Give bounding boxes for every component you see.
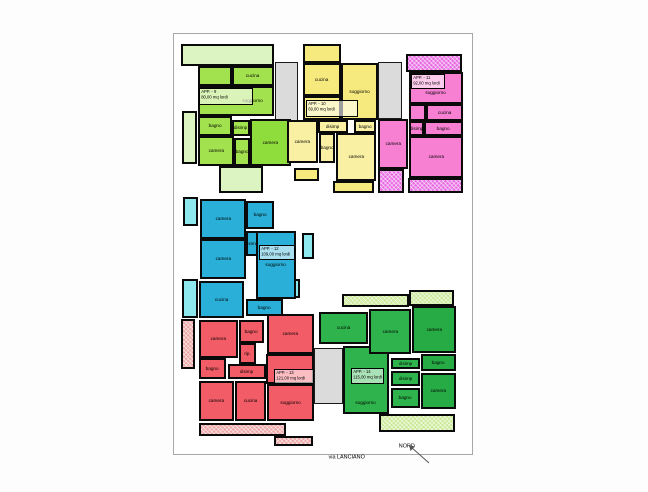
apartment-label-text: APP. - 14115,00 mq lordi [352, 369, 371, 382]
room-label: camera [263, 140, 278, 145]
room-area [303, 44, 341, 63]
room-cucina: cucina [232, 66, 274, 86]
room-label: disimp [399, 361, 412, 366]
room-disimp: disimp [391, 371, 420, 386]
room-cucina: cucina [303, 63, 341, 96]
apartment-label-app-11: APP. - 1192,00 mq lordi [411, 74, 445, 89]
balcony [302, 233, 314, 259]
room-label: bagno [209, 124, 222, 129]
apartment-label-app-13: APP. - 13121,00 mq lordi [274, 369, 314, 384]
room-disimp: disimp [409, 121, 424, 136]
apartment-label-text: APP. - 13121,00 mq lordi [275, 370, 298, 383]
room-cucina: cucina [426, 104, 463, 121]
room-camera: camera [287, 120, 318, 163]
apartment-label-text: APP. - 12109,00 mq lordi [260, 246, 280, 259]
room-label: soggiorno [266, 263, 286, 268]
room-label: disimp [410, 126, 423, 131]
balcony [182, 279, 198, 318]
room-label: bagno [437, 126, 450, 131]
room-label: bagno [254, 213, 267, 218]
room-label: bagno [432, 360, 445, 365]
room-label: camera [431, 389, 446, 394]
room-area [294, 168, 319, 181]
stairwell [314, 348, 343, 404]
screenshot-canvas: cucinasoggiornobagnodisimpcamerabagnocam… [0, 0, 648, 492]
room-bagno: bagno [391, 388, 420, 408]
room-disimp: disimp [391, 358, 420, 369]
room-disimp: disimp [228, 364, 266, 379]
room-label: soggiorno [349, 89, 369, 94]
balcony [199, 423, 286, 436]
room-bagno: bagno [319, 133, 335, 163]
balcony [219, 166, 263, 193]
room-label: camera [385, 142, 400, 147]
room-label: bagno [399, 396, 412, 401]
room-soggiorno: soggiorno [267, 384, 314, 421]
room-camera: camera [198, 136, 234, 166]
street-label-text: via LANCIANO [329, 454, 365, 459]
room-label: camera [382, 329, 397, 334]
room-camera: camera [412, 306, 456, 353]
stairwell [378, 62, 402, 119]
room-label: camera [283, 332, 298, 337]
room-bagno: bagno [198, 116, 232, 136]
room-area [409, 104, 426, 121]
room-label: cucina [315, 77, 328, 82]
room-camera: camera [336, 133, 376, 181]
north-arrow [406, 442, 434, 466]
room-camera: camera [421, 373, 456, 409]
balcony [408, 178, 463, 193]
room-camera: camera [199, 320, 238, 358]
room-label: camera [348, 155, 363, 160]
apartment-label-text: APP. - 1069,00 mq lordi [307, 101, 337, 114]
room-label: camera [215, 217, 230, 222]
room-camera: camera [250, 119, 291, 166]
balcony [409, 290, 454, 306]
room-camera: camera [267, 314, 314, 354]
room-disimp: disimp [232, 120, 250, 136]
balcony [274, 436, 313, 446]
room-camera: camera [409, 136, 463, 178]
room-label: bagno [258, 305, 271, 310]
floor-plan: cucinasoggiornobagnodisimpcamerabagnocam… [174, 34, 472, 454]
balcony [379, 414, 455, 432]
room-camera: camera [378, 119, 408, 169]
room-cucina: cucina [319, 312, 368, 344]
balcony [181, 319, 195, 369]
room-bagno: bagno [239, 320, 264, 343]
room-label: bagno [359, 124, 372, 129]
room-label: soggiorno [280, 400, 300, 405]
room-label: camera [215, 257, 230, 262]
room-camera: camera [199, 381, 234, 421]
room-cucina: cucina [235, 381, 266, 421]
room-label: camera [428, 155, 443, 160]
room-label: cucina [246, 74, 259, 79]
room-cucina: cucina [199, 281, 244, 318]
apartment-label-app-10: APP. - 1069,00 mq lordi [306, 100, 358, 117]
room-label: cucina [438, 110, 451, 115]
balcony [342, 294, 409, 307]
drawing-page: cucinasoggiornobagnodisimpcamerabagnocam… [173, 33, 473, 455]
balcony [183, 197, 198, 226]
room-area [333, 181, 374, 193]
room-label: disimp [240, 369, 253, 374]
room-label: bagno [321, 146, 334, 151]
room-bagno: bagno [421, 354, 456, 371]
room-label: disimp [326, 124, 339, 129]
room-label: cucina [337, 326, 350, 331]
room-label: cucina [244, 399, 257, 404]
room-label: bagno [236, 150, 249, 155]
room-label: camera [208, 149, 223, 154]
room-label: camera [295, 139, 310, 144]
room-label: camera [211, 337, 226, 342]
room-label: disimp [399, 376, 412, 381]
balcony [181, 44, 274, 66]
room-bagno: bagno [354, 120, 376, 133]
apartment-label-app-12: APP. - 12109,00 mq lordi [259, 245, 295, 260]
room-label: rip. [244, 351, 250, 356]
room-label: camera [426, 327, 441, 332]
balcony [406, 54, 462, 72]
room-label: soggiorno [426, 91, 446, 96]
street-label: via LANCIANO [312, 446, 382, 464]
room-rip: rip. [239, 343, 256, 364]
room-label: soggiorno [356, 401, 376, 406]
room-bagno: bagno [234, 138, 250, 166]
room-area [198, 66, 232, 86]
apartment-label-app-14: APP. - 14115,00 mq lordi [351, 368, 384, 384]
room-label: cucina [215, 297, 228, 302]
room-bagno: bagno [199, 358, 226, 379]
apartment-label-text: APP. - 1192,00 mq lordi [412, 75, 431, 88]
room-label: bagno [206, 366, 219, 371]
room-disimp: disimp [318, 120, 348, 133]
room-camera: camera [200, 239, 246, 279]
room-camera: camera [200, 199, 246, 239]
room-label: bagno [245, 329, 258, 334]
room-soggiorno: soggiorno [256, 231, 296, 299]
north-arrow-line [411, 447, 429, 463]
room-label: disimp [234, 126, 247, 131]
balcony [378, 169, 404, 193]
room-bagno: bagno [424, 121, 463, 136]
room-camera: camera [369, 309, 411, 354]
balcony [182, 111, 197, 164]
room-label: camera [209, 399, 224, 404]
apartment-label-text: APP. - 980,00 mq lordi [200, 89, 231, 102]
apartment-label-app-9: APP. - 980,00 mq lordi [199, 88, 253, 105]
room-bagno: bagno [246, 201, 274, 229]
